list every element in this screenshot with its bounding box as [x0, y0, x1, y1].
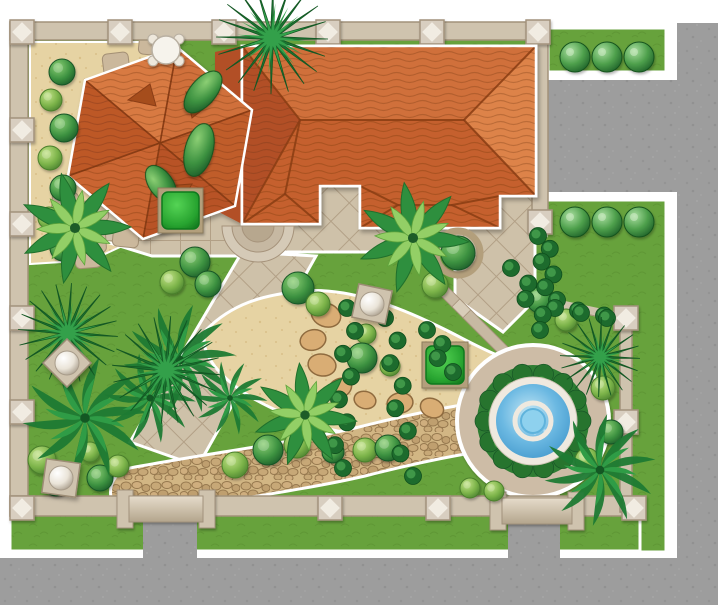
topiary-highlight: [598, 48, 606, 56]
bush-highlight: [352, 348, 363, 359]
ball-ornament-post: [352, 284, 392, 324]
vine-clump-light: [341, 302, 350, 311]
vine-clump-light: [345, 370, 354, 379]
bush-highlight: [379, 439, 389, 449]
round-bush: [40, 89, 62, 111]
square-hedge: [158, 188, 203, 233]
topiary-highlight: [566, 213, 574, 221]
topiary-highlight: [630, 48, 638, 56]
hedge-body: [162, 192, 199, 229]
driveway-gap: [143, 516, 197, 605]
bush-body: [107, 455, 129, 477]
vine-clump-light: [401, 424, 410, 433]
topiary-ball: [592, 42, 622, 72]
vine-clump-light: [505, 262, 514, 271]
bush-highlight: [487, 484, 495, 492]
fern-center: [408, 233, 418, 243]
bush-highlight: [42, 150, 51, 159]
vine-clump-light: [547, 268, 556, 277]
topiary-body: [624, 42, 654, 72]
round-bush: [195, 271, 221, 297]
vine-clump-light: [447, 366, 456, 375]
vine-clump-light: [431, 352, 440, 361]
topiary-ball: [592, 207, 622, 237]
street-pavement: [0, 558, 718, 605]
bush-highlight: [91, 469, 101, 479]
topiary-highlight: [630, 213, 638, 221]
round-bush: [591, 376, 615, 400]
round-bush: [107, 455, 129, 477]
street-pavement: [548, 80, 718, 192]
ornament-sphere: [55, 351, 79, 375]
vine-clump-light: [384, 357, 393, 366]
bush-body: [38, 146, 62, 170]
bush-highlight: [44, 92, 52, 100]
vine-clump-light: [436, 338, 445, 347]
perimeter-wall: [10, 22, 28, 516]
wall-post: [318, 496, 342, 520]
bush-highlight: [185, 252, 196, 263]
topiary-body: [592, 207, 622, 237]
round-bush: [222, 452, 248, 478]
ornament-sphere: [360, 292, 384, 316]
vine-clump-light: [575, 307, 584, 316]
landscape-plan-canvas: [0, 0, 718, 605]
bush-highlight: [164, 274, 173, 283]
vine-clump-light: [532, 230, 541, 239]
fountain-center-basin: [521, 409, 545, 433]
bush-highlight: [310, 296, 319, 305]
bush-highlight: [258, 440, 269, 451]
bush-body: [40, 89, 62, 111]
bush-body: [591, 376, 615, 400]
vine-clump-light: [349, 324, 358, 333]
bush-highlight: [54, 118, 65, 129]
topiary-body: [624, 207, 654, 237]
topiary-ball: [560, 42, 590, 72]
wall-post: [10, 212, 34, 236]
bush-body: [306, 292, 330, 316]
vine-clump-light: [601, 312, 610, 321]
round-bush: [306, 292, 330, 316]
bush-highlight: [357, 442, 366, 451]
round-bush: [253, 435, 283, 465]
palm-center: [227, 395, 233, 401]
vine-clump-light: [535, 255, 544, 264]
vine-clump-light: [394, 447, 403, 456]
topiary-ball: [624, 207, 654, 237]
bush-highlight: [463, 481, 471, 489]
palm-center: [596, 466, 605, 475]
bush-highlight: [199, 275, 209, 285]
topiary-highlight: [566, 48, 574, 56]
bush-highlight: [111, 458, 119, 466]
bush-highlight: [53, 63, 63, 73]
vine-clump-light: [396, 379, 405, 388]
wall-post: [420, 20, 444, 44]
round-bush: [49, 59, 75, 85]
garden-table: [148, 34, 184, 66]
round-bush: [50, 114, 78, 142]
round-bush: [353, 438, 377, 462]
round-bush: [160, 270, 184, 294]
bush-body: [50, 114, 78, 142]
fern-center: [300, 410, 309, 419]
scene-root: [0, 0, 718, 605]
wall-post: [108, 20, 132, 44]
vine-clump-light: [543, 242, 552, 251]
topiary-ball: [560, 207, 590, 237]
topiary-highlight: [598, 213, 606, 221]
bush-highlight: [226, 456, 236, 466]
vine-clump-light: [337, 347, 346, 356]
bush-body: [160, 270, 184, 294]
house-roof: [68, 46, 536, 239]
gate-panel: [129, 496, 203, 522]
gate-panel: [502, 498, 572, 524]
wall-post: [614, 306, 638, 330]
topiary-body: [560, 42, 590, 72]
ball-ornament-post: [42, 459, 80, 497]
garden-gate: [490, 492, 584, 530]
vine-clump-light: [539, 281, 548, 290]
palm-center: [80, 413, 90, 423]
wall-post: [10, 118, 34, 142]
wall-post: [526, 20, 550, 44]
round-bush: [460, 478, 480, 498]
vine-clump-light: [519, 293, 528, 302]
topiary-body: [592, 42, 622, 72]
vine-clump-light: [522, 277, 531, 286]
topiary-body: [560, 207, 590, 237]
topiary-ball: [624, 42, 654, 72]
bush-body: [49, 59, 75, 85]
ornament-sphere: [49, 466, 73, 490]
driveway-gap: [508, 518, 560, 605]
round-bush: [484, 481, 504, 501]
bush-body: [253, 435, 283, 465]
round-bush: [38, 146, 62, 170]
garden-gate: [117, 490, 215, 528]
plan-svg: [0, 0, 718, 605]
vine-clump-light: [536, 308, 545, 317]
wall-post: [10, 400, 34, 424]
fern-center: [70, 223, 80, 233]
bush-body: [195, 271, 221, 297]
vine-clump-light: [421, 324, 430, 333]
vine-clump-light: [389, 402, 398, 411]
bush-highlight: [287, 277, 299, 289]
bush-body: [222, 452, 248, 478]
wall-post: [10, 20, 34, 44]
wall-post: [10, 496, 34, 520]
vine-clump-light: [534, 324, 543, 333]
bush-body: [353, 438, 377, 462]
vine-clump-light: [407, 470, 416, 479]
vine-clump-light: [391, 334, 400, 343]
bush-body: [460, 478, 480, 498]
bush-body: [484, 481, 504, 501]
vine-clump-light: [337, 462, 346, 471]
table-top: [152, 36, 180, 64]
wall-post: [426, 496, 450, 520]
